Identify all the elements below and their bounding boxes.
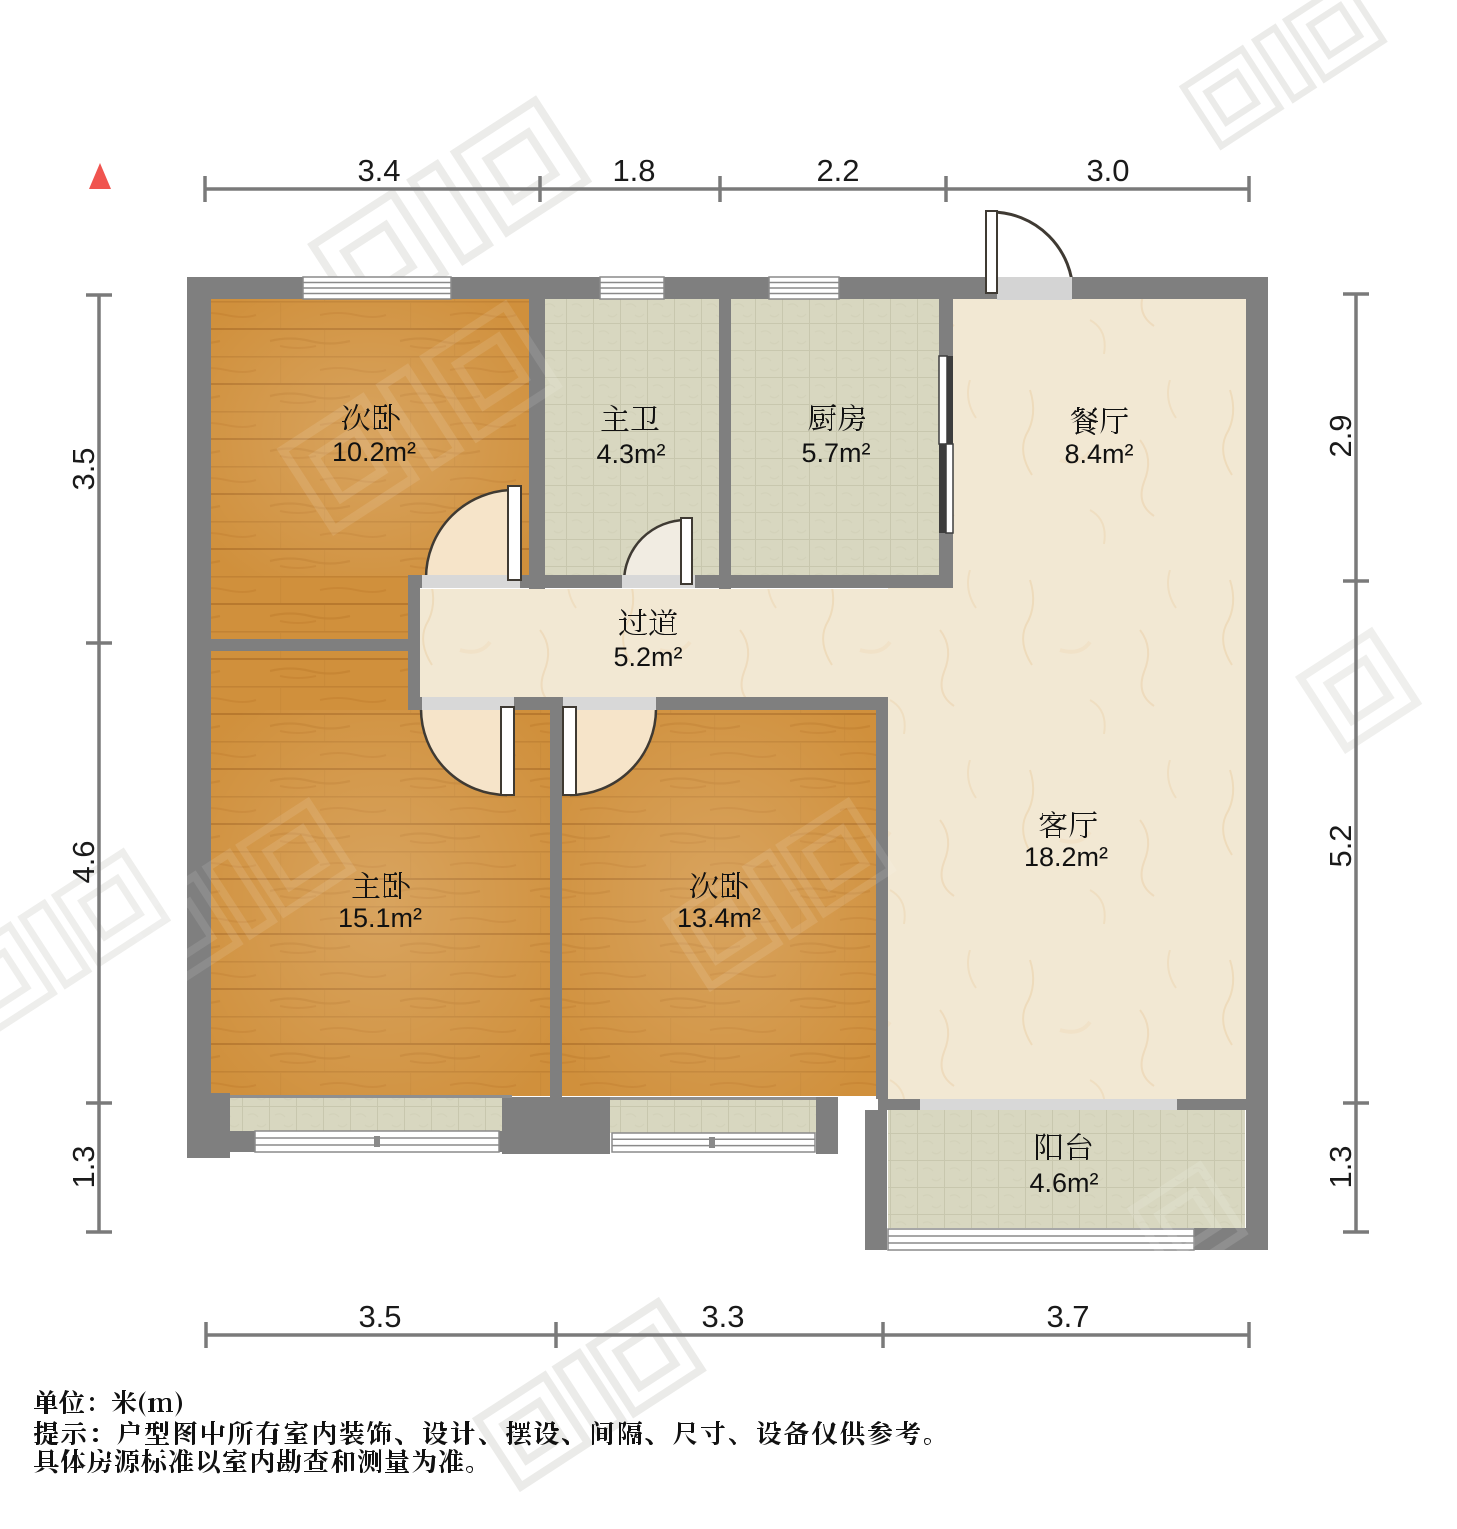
svg-text:4.3m²: 4.3m² [596, 439, 665, 469]
svg-text:5.2m²: 5.2m² [613, 642, 682, 672]
svg-text:3.7: 3.7 [1046, 1299, 1089, 1334]
svg-text:3.4: 3.4 [357, 153, 400, 188]
svg-text:2.9: 2.9 [1323, 414, 1358, 457]
svg-text:8.4m²: 8.4m² [1064, 439, 1133, 469]
svg-text:4.6: 4.6 [66, 840, 101, 883]
svg-text:1.3: 1.3 [1323, 1145, 1358, 1188]
svg-text:18.2m²: 18.2m² [1024, 842, 1108, 872]
svg-text:2.2: 2.2 [816, 153, 859, 188]
svg-text:3.5: 3.5 [358, 1299, 401, 1334]
svg-text:10.2m²: 10.2m² [332, 437, 416, 467]
svg-text:1.3: 1.3 [66, 1145, 101, 1188]
svg-text:4.6m²: 4.6m² [1029, 1168, 1098, 1198]
svg-text:13.4m²: 13.4m² [677, 903, 761, 933]
svg-text:3.5: 3.5 [66, 447, 101, 490]
svg-text:3.0: 3.0 [1086, 153, 1129, 188]
svg-text:3.3: 3.3 [701, 1299, 744, 1334]
svg-text:1.8: 1.8 [612, 153, 655, 188]
svg-text:5.7m²: 5.7m² [801, 438, 870, 468]
svg-text:15.1m²: 15.1m² [338, 903, 422, 933]
svg-text:5.2: 5.2 [1323, 824, 1358, 867]
